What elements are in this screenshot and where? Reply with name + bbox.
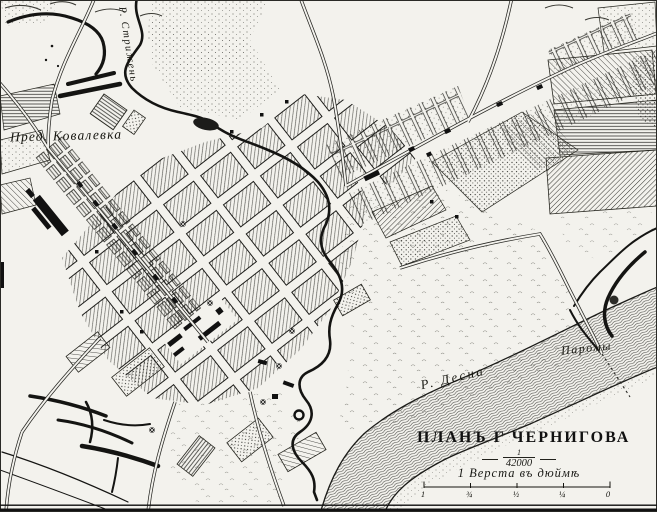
scale-bar: 1 ¾ ½ ¼ 0 bbox=[421, 482, 611, 500]
scale-caption: 1 Верста въ дюймѣ bbox=[417, 466, 621, 481]
fraction-numerator: 1 bbox=[517, 449, 521, 457]
fraction-dash-right bbox=[540, 459, 556, 460]
map-canvas: 1 ¾ ½ ¼ 0 Пред. Ковалевка Р. Стрижень Р.… bbox=[0, 0, 657, 512]
label-suburb-kovalevka: Пред. Ковалевка bbox=[10, 127, 123, 146]
scale-bar-tick-label: 1 bbox=[421, 489, 425, 499]
scale-bar-tick-label: ½ bbox=[513, 489, 520, 499]
scale-bar-tick-label: 0 bbox=[606, 489, 611, 499]
scale-bar-tick-label: ¼ bbox=[559, 489, 566, 499]
fraction-dash-left bbox=[482, 459, 498, 460]
scale-bar-tick-label: ¾ bbox=[466, 489, 473, 499]
map-title: ПЛАНЪ Г ЧЕРНИГОВА bbox=[417, 429, 621, 447]
